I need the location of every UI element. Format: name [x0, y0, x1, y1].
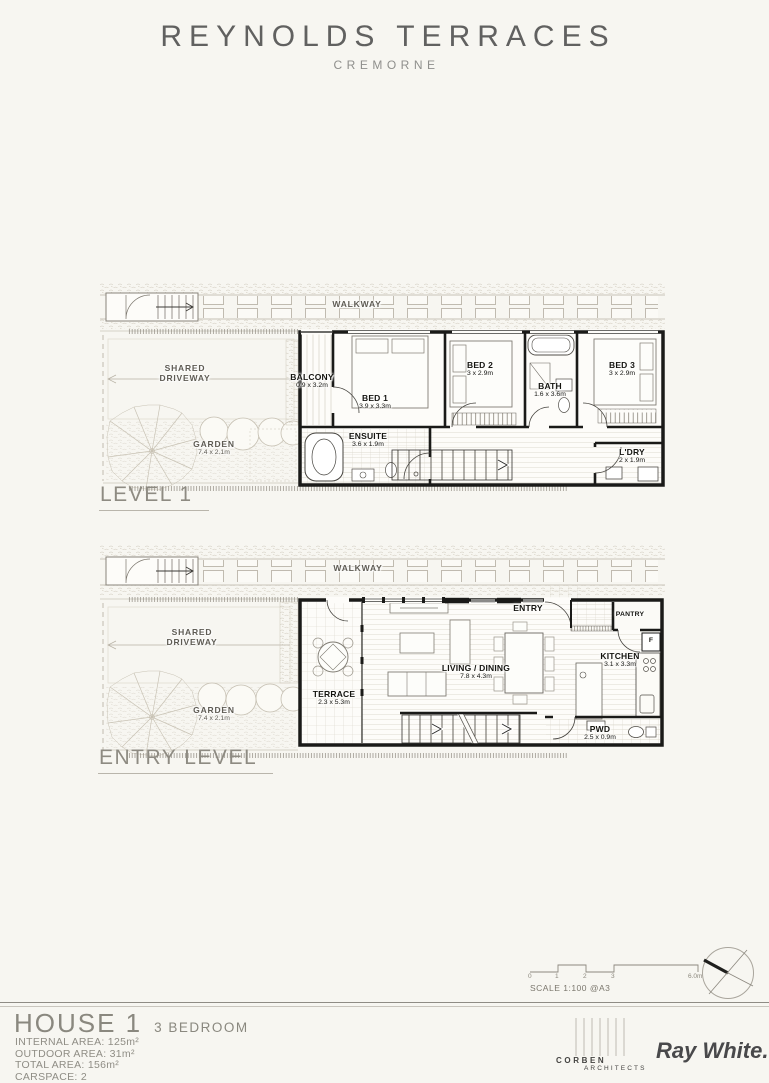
room-label-pantry: PANTRY	[616, 611, 644, 619]
scale-tick-1: 1	[555, 973, 559, 980]
room-label-ldry: L'DRY2 x 1.9m	[619, 447, 645, 465]
scale-tick-0: 0	[528, 973, 532, 980]
room-label-balcony: BALCONY0.9 x 3.2m	[290, 372, 333, 390]
corben-logo-line1: CORBEN	[556, 1056, 606, 1065]
room-label-bed1: BED 13.9 x 3.3m	[359, 393, 391, 411]
room-label-entry: ENTRY	[513, 603, 543, 613]
house-type: 3 BEDROOM	[154, 1020, 249, 1035]
scale-label: SCALE 1:100 @A3	[530, 983, 610, 993]
footer-divider	[0, 1002, 769, 1007]
scale-tick-2: 2	[583, 973, 587, 980]
room-label-bath: BATH1.6 x 3.6m	[534, 381, 566, 399]
room-label-living-dining: LIVING / DINING7.8 x 4.3m	[442, 663, 510, 681]
room-label-bed3: BED 33 x 2.9m	[609, 360, 635, 378]
page-title: REYNOLDS TERRACES	[0, 20, 769, 54]
ray-white-logo: Ray White.	[656, 1038, 768, 1064]
spec-total-area: TOTAL AREA: 156m²	[15, 1060, 139, 1072]
corben-architects-logo: CORBEN ARCHITECTS	[556, 1018, 666, 1070]
scale-bar: 0 1 2 3 6.0m SCALE 1:100 @A3	[528, 958, 718, 1002]
room-label-ensuite: ENSUITE3.6 x 1.9m	[349, 431, 387, 449]
corben-logo-lines-icon	[574, 1018, 630, 1056]
spec-internal-area: INTERNAL AREA: 125m²	[15, 1037, 139, 1049]
room-label-pwd: PWD2.5 x 0.9m	[584, 724, 616, 742]
north-arrow-icon	[696, 934, 764, 1002]
house-heading: HOUSE 1 3 BEDROOM	[14, 1008, 249, 1039]
garden-label: GARDEN7.4 x 2.1m	[193, 705, 235, 723]
floor-plan-entry-level: WALKWAY SHARED DRIVEWAY GARDEN7.4 x 2.1m…	[100, 545, 665, 777]
floor-plan-level-1: WALKWAY SHARED DRIVEWAY GARDEN7.4 x 2.1m…	[100, 283, 665, 508]
page-subtitle: CREMORNE	[0, 58, 769, 72]
room-label-terrace: TERRACE2.3 x 5.3m	[313, 689, 356, 707]
walkway-label: WALKWAY	[332, 299, 381, 309]
spec-carspace: CARSPACE: 2	[15, 1072, 139, 1083]
walkway-label: WALKWAY	[333, 563, 382, 573]
scale-tick-3: 3	[611, 973, 615, 980]
shared-driveway-label: SHARED DRIVEWAY	[153, 627, 231, 647]
shared-driveway-label: SHARED DRIVEWAY	[146, 363, 224, 383]
level-1-title: LEVEL 1	[99, 483, 209, 511]
house-number: HOUSE 1	[14, 1008, 142, 1039]
room-label-bed2: BED 23 x 2.9m	[467, 360, 493, 378]
entry-level-plan-drawing	[100, 545, 665, 777]
entry-level-title: ENTRY LEVEL	[98, 746, 273, 774]
corben-logo-line2: ARCHITECTS	[584, 1065, 647, 1072]
house-specs: INTERNAL AREA: 125m² OUTDOOR AREA: 31m² …	[15, 1037, 139, 1083]
fridge-label: F	[649, 637, 653, 645]
garden-label: GARDEN7.4 x 2.1m	[193, 439, 235, 457]
room-label-kitchen: KITCHEN3.1 x 3.3m	[600, 651, 639, 669]
